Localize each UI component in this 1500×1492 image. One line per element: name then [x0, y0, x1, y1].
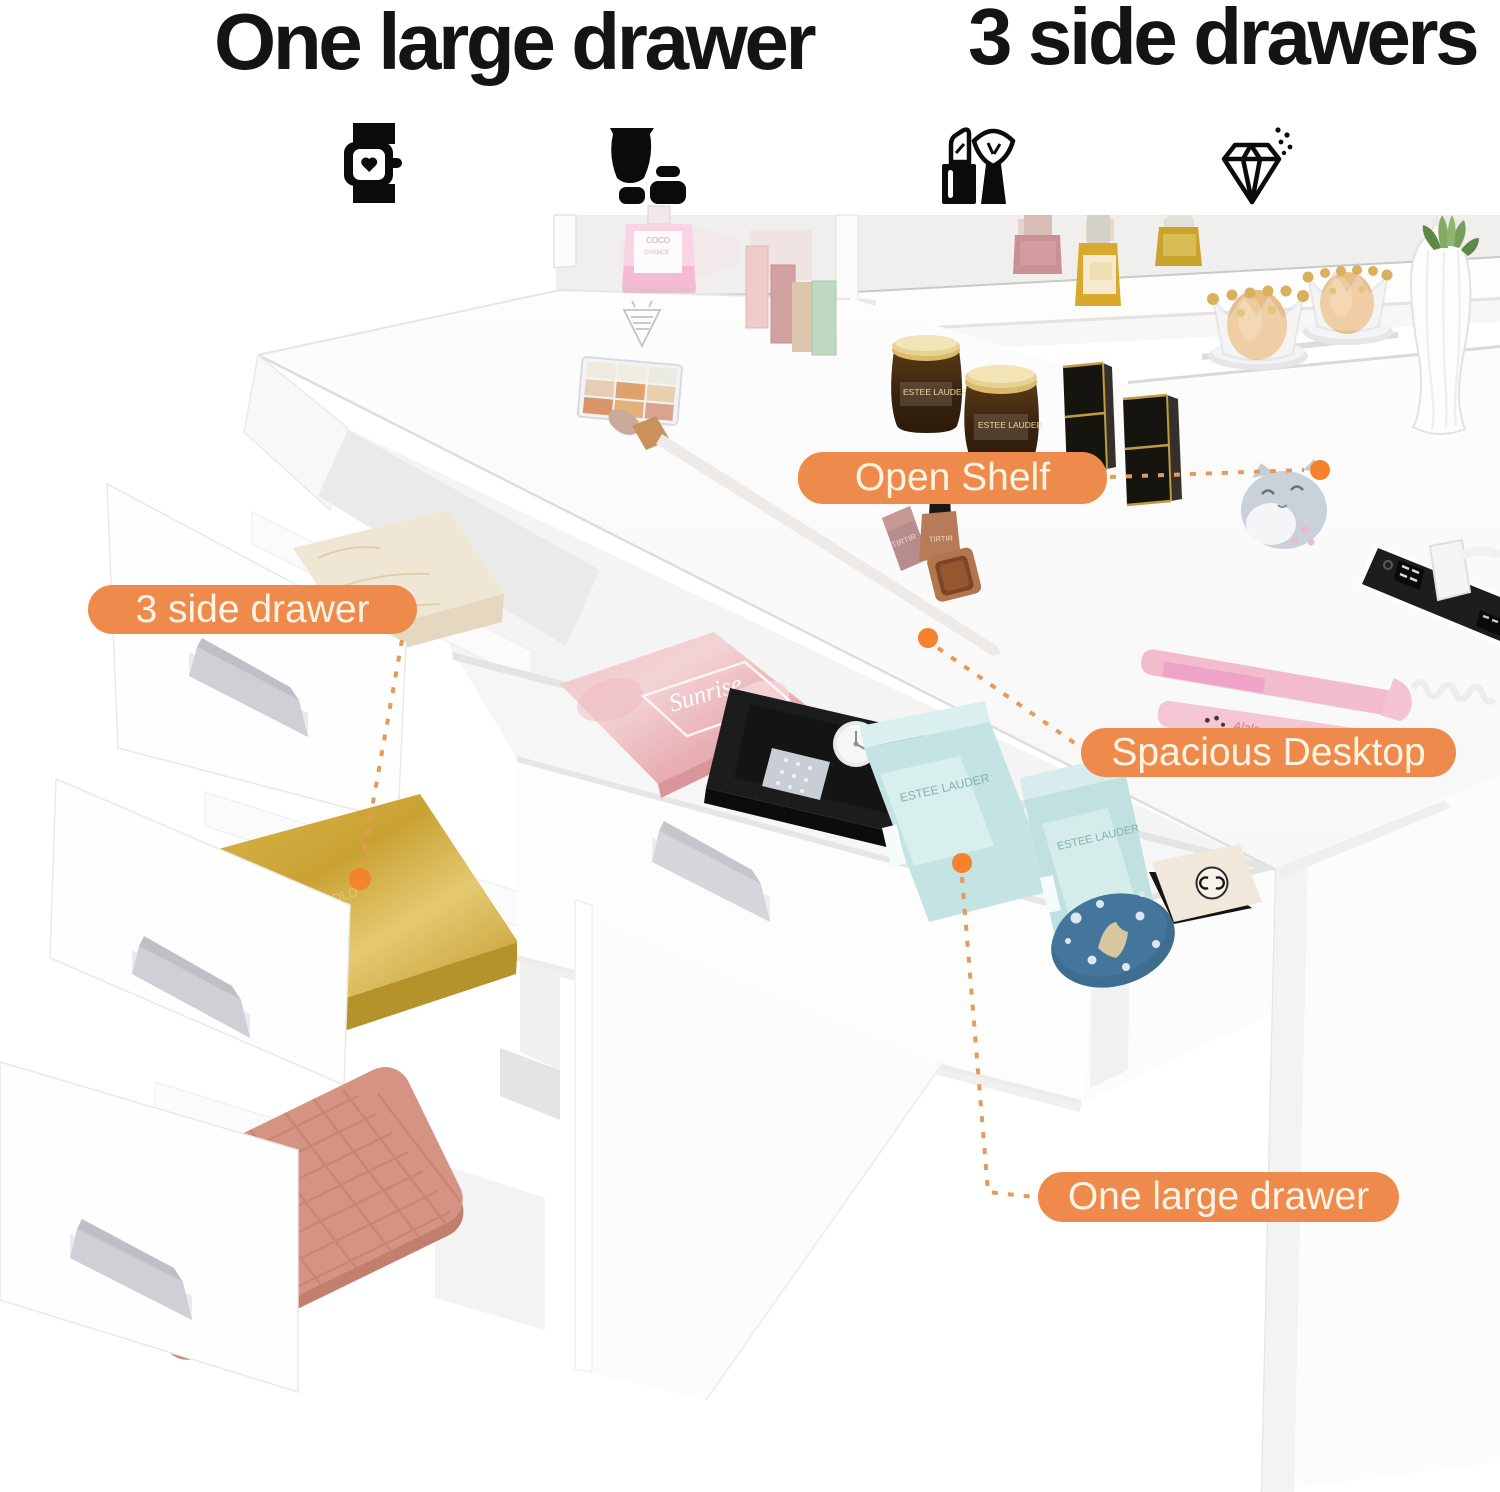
svg-text:ESTEE LAUDER: ESTEE LAUDER: [903, 387, 968, 397]
svg-text:TIRTIR: TIRTIR: [929, 534, 954, 544]
svg-text:COCO: COCO: [646, 236, 670, 245]
svg-text:ESTEE LAUDER: ESTEE LAUDER: [978, 420, 1043, 430]
svg-text:CHANCE: CHANCE: [644, 250, 669, 256]
